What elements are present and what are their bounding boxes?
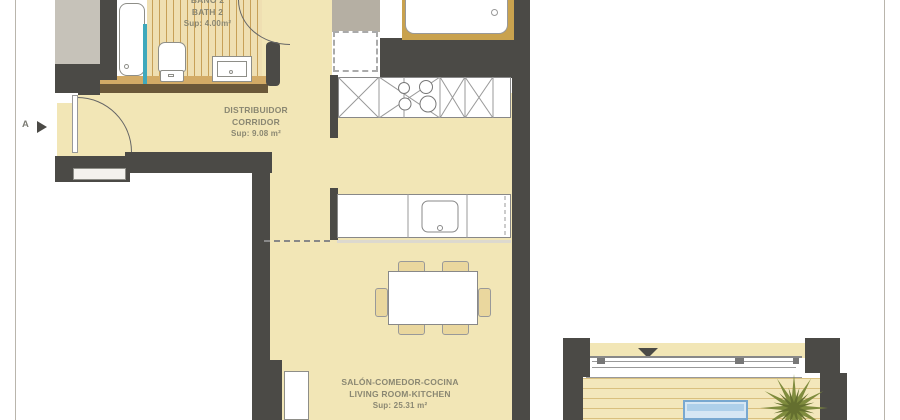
bathroom-area: Sup: 4.00m²	[155, 18, 260, 30]
adjacent-space-top-left	[55, 0, 100, 64]
wall-kitchen-top	[380, 38, 530, 78]
wall-living-left-lower	[252, 360, 282, 420]
toilet-flush-icon	[168, 74, 174, 77]
sun-lounger	[683, 400, 748, 420]
wall-right	[512, 0, 530, 420]
kitchen-island-counter	[337, 194, 511, 238]
terrace-window-glazing	[592, 361, 796, 368]
corridor-window-sill	[73, 168, 126, 180]
kitchen-cabinets-drawing	[338, 77, 511, 118]
palm-plant-drawing	[758, 372, 830, 420]
washbasin-drain-icon	[229, 70, 233, 74]
section-marker-letter: A	[22, 119, 34, 131]
wall-terrace-left-upper	[563, 338, 590, 377]
corridor-name-es: DISTRIBUIDOR	[200, 104, 312, 116]
wall-top-left-corner	[55, 64, 100, 95]
sheet-border-right	[884, 0, 885, 420]
wall-kitchen-stub	[330, 75, 338, 138]
dining-chair	[375, 288, 388, 317]
toilet-bowl	[158, 42, 186, 72]
bathroom-bottom-wall	[100, 84, 268, 93]
window-handle-icon	[597, 358, 605, 364]
palm-plant-icon	[758, 372, 830, 420]
entrance-door-leaf	[72, 95, 78, 153]
living-name-en: LIVING ROOM-KITCHEN	[308, 388, 492, 400]
tv-bench	[284, 371, 309, 420]
wall-bath-door-jamb	[266, 42, 280, 86]
laundry-appliance	[333, 31, 378, 72]
opening-dashed-line	[264, 240, 330, 242]
dining-chair	[478, 288, 491, 317]
corridor-name-en: CORRIDOR	[200, 116, 312, 128]
island-counter-shadow	[337, 240, 511, 243]
corridor-label: DISTRIBUIDOR CORRIDOR Sup: 9.08 m²	[200, 104, 312, 140]
wall-corridor-bottom	[125, 152, 272, 173]
shower-glass-screen	[143, 24, 147, 84]
window-handle-icon	[793, 358, 799, 364]
sheet-border-left	[15, 0, 16, 420]
kitchen-island-drawing	[337, 194, 511, 238]
living-room-label: SALÓN-COMEDOR-COCINA LIVING ROOM-KITCHEN…	[308, 376, 492, 412]
sun-lounger-cushion	[687, 404, 744, 411]
wall-terrace-left-lower	[563, 377, 583, 420]
living-name-es: SALÓN-COMEDOR-COCINA	[308, 376, 492, 388]
shower-tray	[119, 3, 145, 76]
bathtub	[405, 0, 508, 34]
adjacent-space-top-middle	[332, 0, 380, 32]
section-arrow-icon	[37, 121, 47, 133]
corridor-area: Sup: 9.08 m²	[200, 128, 312, 140]
living-area: Sup: 25.31 m²	[308, 400, 492, 412]
wall-terrace-right-upper	[805, 338, 840, 373]
window-handle-icon	[735, 358, 744, 364]
floor-plan: BAÑO 2 BATH 2 Sup: 4.00m² A DISTRIBUIDOR…	[0, 0, 900, 420]
bathtub-drain-icon	[491, 9, 498, 16]
wall-shower-left	[100, 0, 117, 80]
washbasin-bowl	[217, 61, 247, 77]
shower-drain-icon	[124, 64, 129, 69]
kitchen-cabinets-hob	[338, 77, 511, 118]
bathroom-name-en: BATH 2	[155, 6, 260, 18]
wall-living-left	[252, 172, 270, 365]
bathroom-label: BAÑO 2 BATH 2 Sup: 4.00m²	[155, 0, 260, 30]
dining-table	[388, 271, 478, 325]
